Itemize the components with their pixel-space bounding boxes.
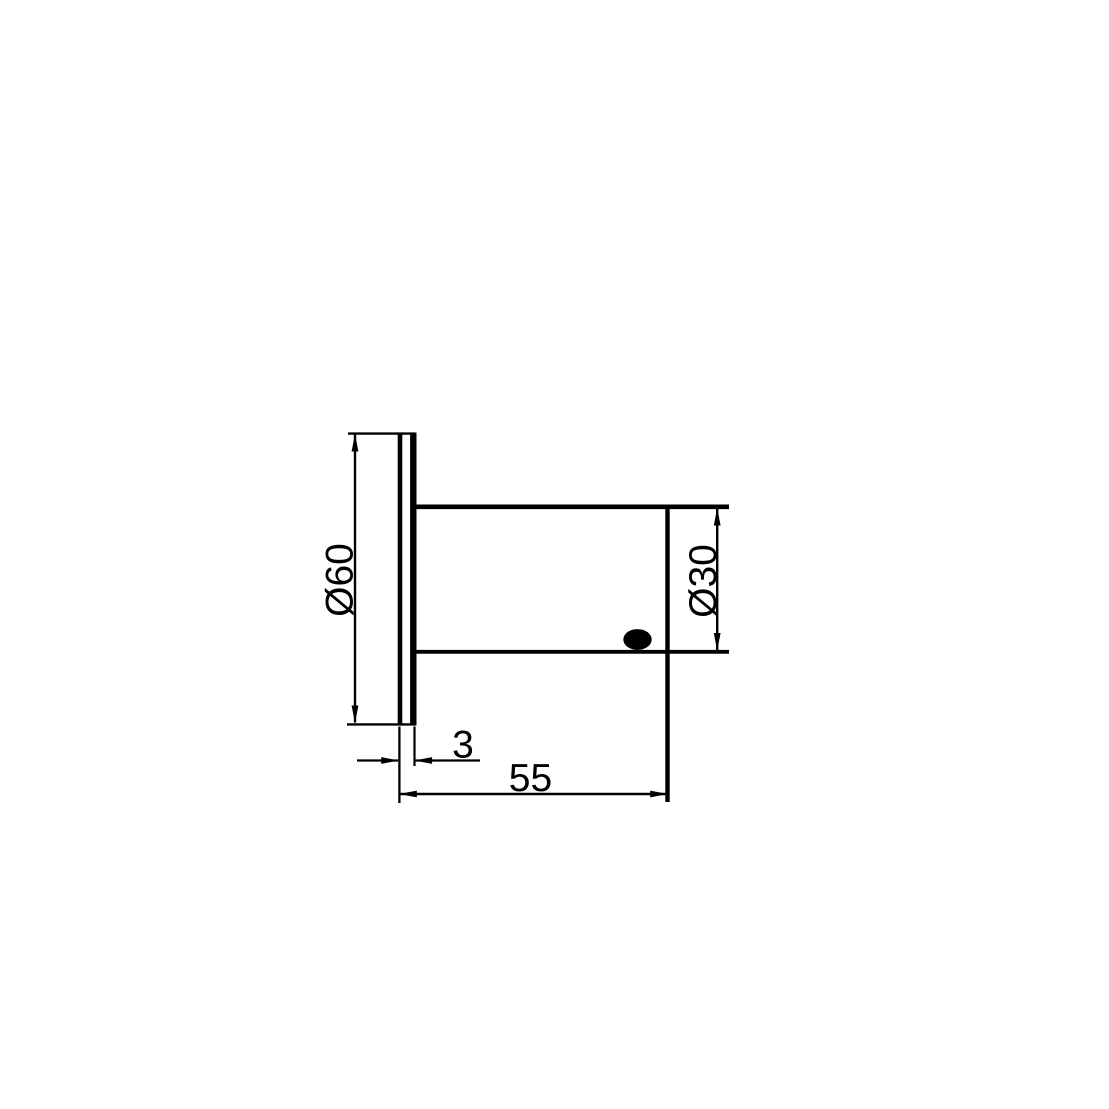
drawing-page: Ø60 Ø30 3 55 — [0, 0, 1109, 1109]
dim-label-body-diameter: Ø30 — [682, 544, 725, 618]
dim-label-flange-diameter: Ø60 — [319, 543, 362, 617]
arrowhead-left-flange-thickness — [414, 757, 432, 764]
arrowhead-up-flange-diameter — [352, 434, 359, 452]
dim-label-flange-thickness: 3 — [452, 724, 474, 767]
arrowhead-down-body-diameter — [714, 633, 721, 651]
technical-drawing-canvas: Ø60 Ø30 3 55 — [0, 0, 1109, 1109]
arrowhead-right-flange-thickness — [381, 757, 399, 764]
dim-label-overall-length: 55 — [509, 757, 552, 800]
ink-layer: Ø60 Ø30 3 55 — [319, 433, 730, 804]
spot-mark — [623, 629, 651, 650]
fill-layer: Ø60 Ø30 3 55 — [319, 434, 726, 800]
arrowhead-left-overall-length — [399, 791, 417, 798]
arrowhead-right-overall-length — [650, 791, 668, 798]
arrowhead-up-body-diameter — [714, 508, 721, 526]
arrowhead-down-flange-diameter — [352, 706, 359, 724]
